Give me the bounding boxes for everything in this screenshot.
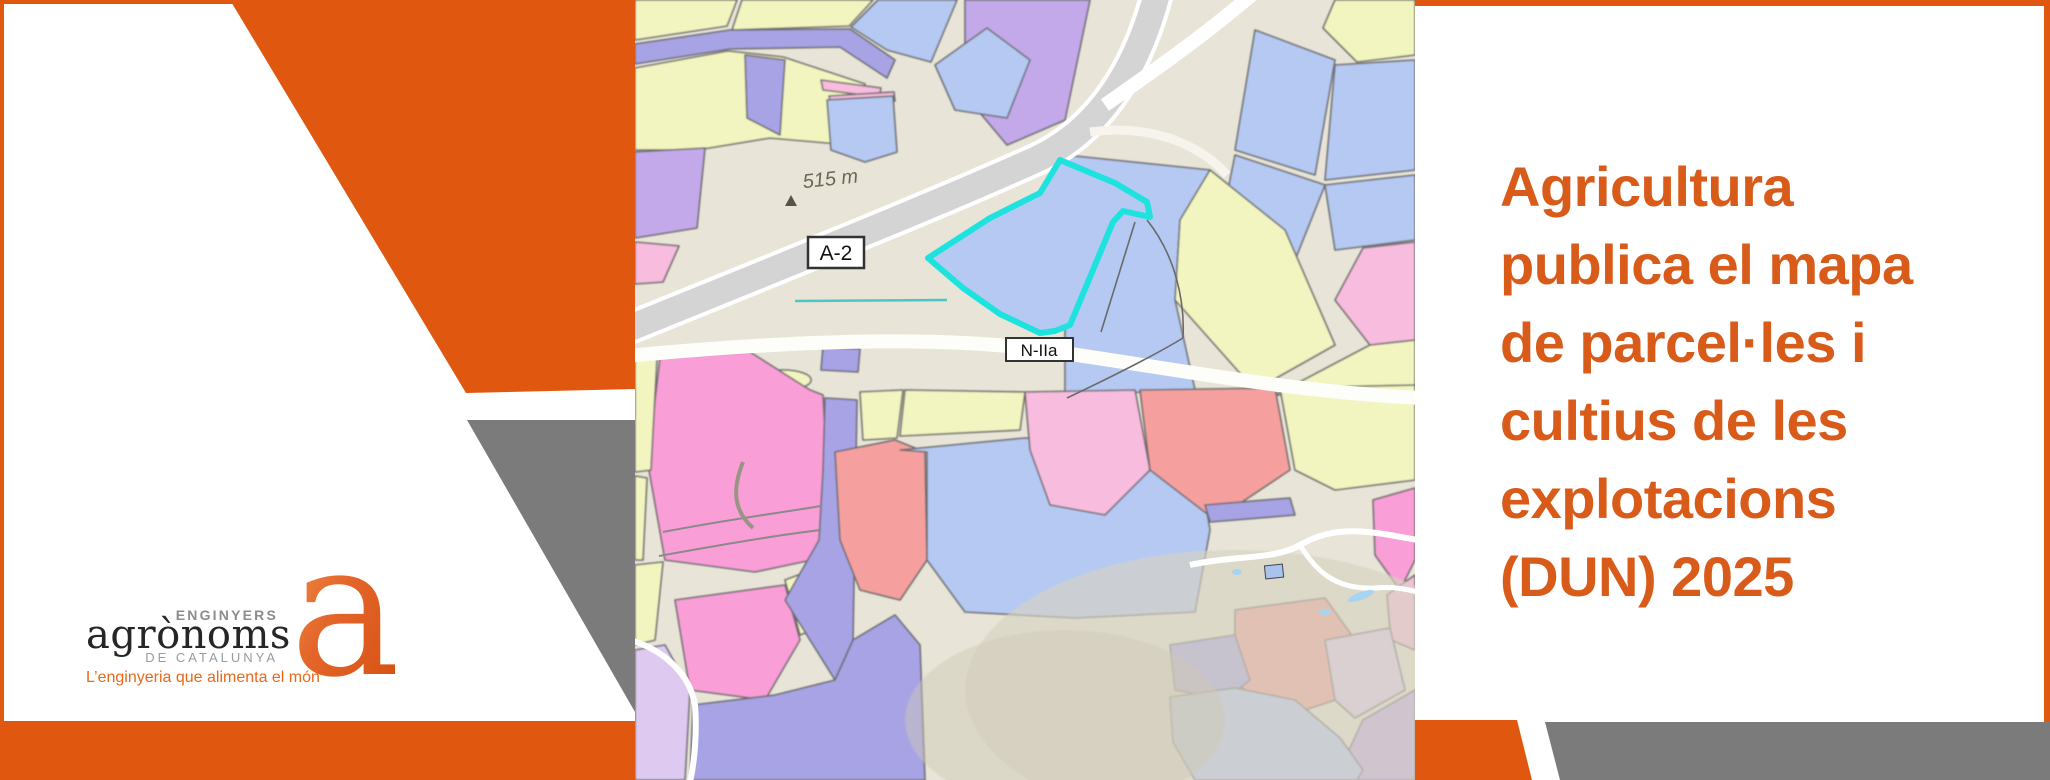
left-panel: ENGINYERS agrònoms DE CATALUNYA L’enginy…: [0, 0, 635, 780]
road-label-a2-text: A-2: [820, 242, 853, 265]
logo: ENGINYERS agrònoms DE CATALUNYA L’enginy…: [86, 608, 406, 685]
road-label-a2: A-2: [808, 237, 864, 268]
right-panel: Agricultura publica el mapa de parcel·le…: [1415, 0, 2050, 780]
headline-line-6: (DUN) 2025: [1500, 538, 1913, 616]
parcel-map: 515 m A-2 N-IIa: [635, 0, 1415, 780]
logo-name: agrònoms: [86, 622, 278, 648]
headline-line-2: publica el mapa: [1500, 226, 1913, 304]
orange-diagonal-shape: [230, 0, 635, 393]
gray-triangle-shape: [467, 420, 635, 712]
left-border: [0, 0, 4, 780]
road-label-n2a: N-IIa: [1006, 338, 1073, 361]
measure-line: [795, 300, 947, 301]
banner: ENGINYERS agrònoms DE CATALUNYA L’enginy…: [0, 0, 2050, 780]
headline-line-3: de parcel·les i: [1500, 304, 1913, 382]
road-label-n2a-text: N-IIa: [1021, 341, 1058, 360]
logo-monogram-icon: a: [284, 560, 419, 685]
bottom-gray-strip: [1545, 722, 2050, 780]
headline-line-1: Agricultura: [1500, 148, 1913, 226]
water-speck-2: [1319, 609, 1331, 615]
bottom-orange-strip: [0, 721, 635, 780]
logo-monogram-letter: a: [290, 560, 400, 685]
building-square: [1264, 564, 1283, 579]
right-top-border: [1415, 0, 2050, 6]
right-edge-border: [2044, 0, 2050, 723]
headline-line-5: explotacions: [1500, 460, 1913, 538]
water-speck-1: [1232, 569, 1242, 575]
top-border: [0, 0, 635, 4]
headline: Agricultura publica el mapa de parcel·le…: [1500, 148, 1913, 616]
headline-line-4: cultius de les: [1500, 382, 1913, 460]
bottom-orange-piece: [1415, 720, 1532, 780]
